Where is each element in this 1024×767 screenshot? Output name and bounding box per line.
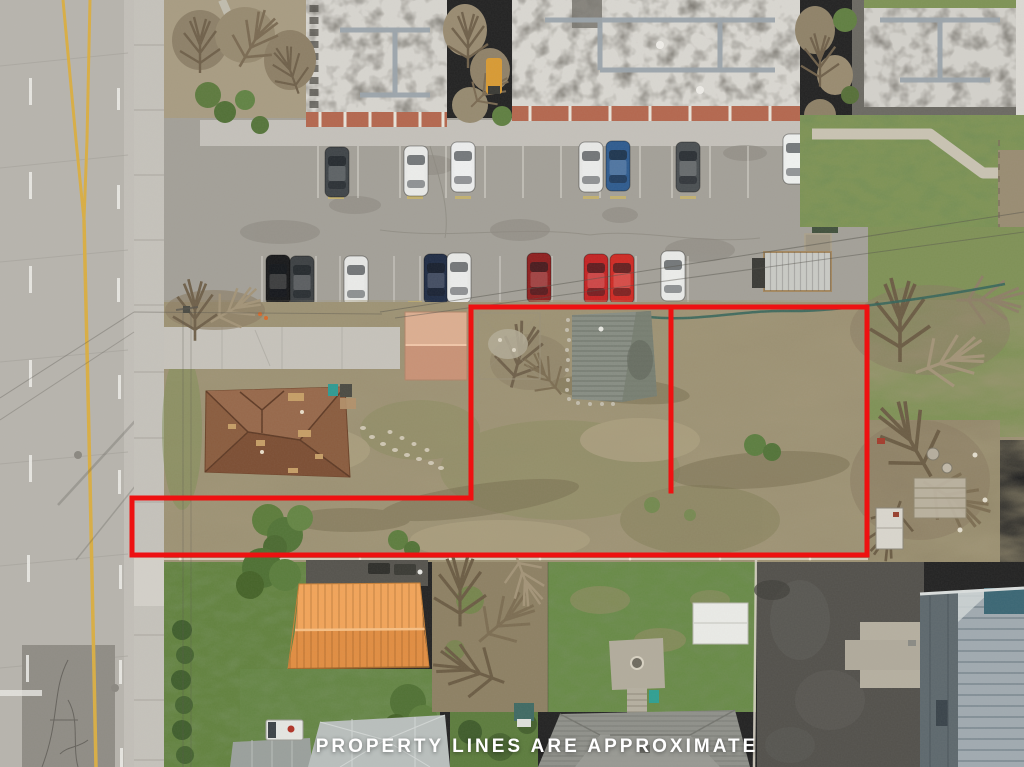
- aerial-listing-photo: PROPERTY LINES ARE APPROXIMATE: [0, 0, 1024, 767]
- photo-caption: PROPERTY LINES ARE APPROXIMATE: [316, 736, 759, 758]
- photo-grain-overlay: [0, 0, 1024, 767]
- aerial-photo-canvas: [0, 0, 1024, 767]
